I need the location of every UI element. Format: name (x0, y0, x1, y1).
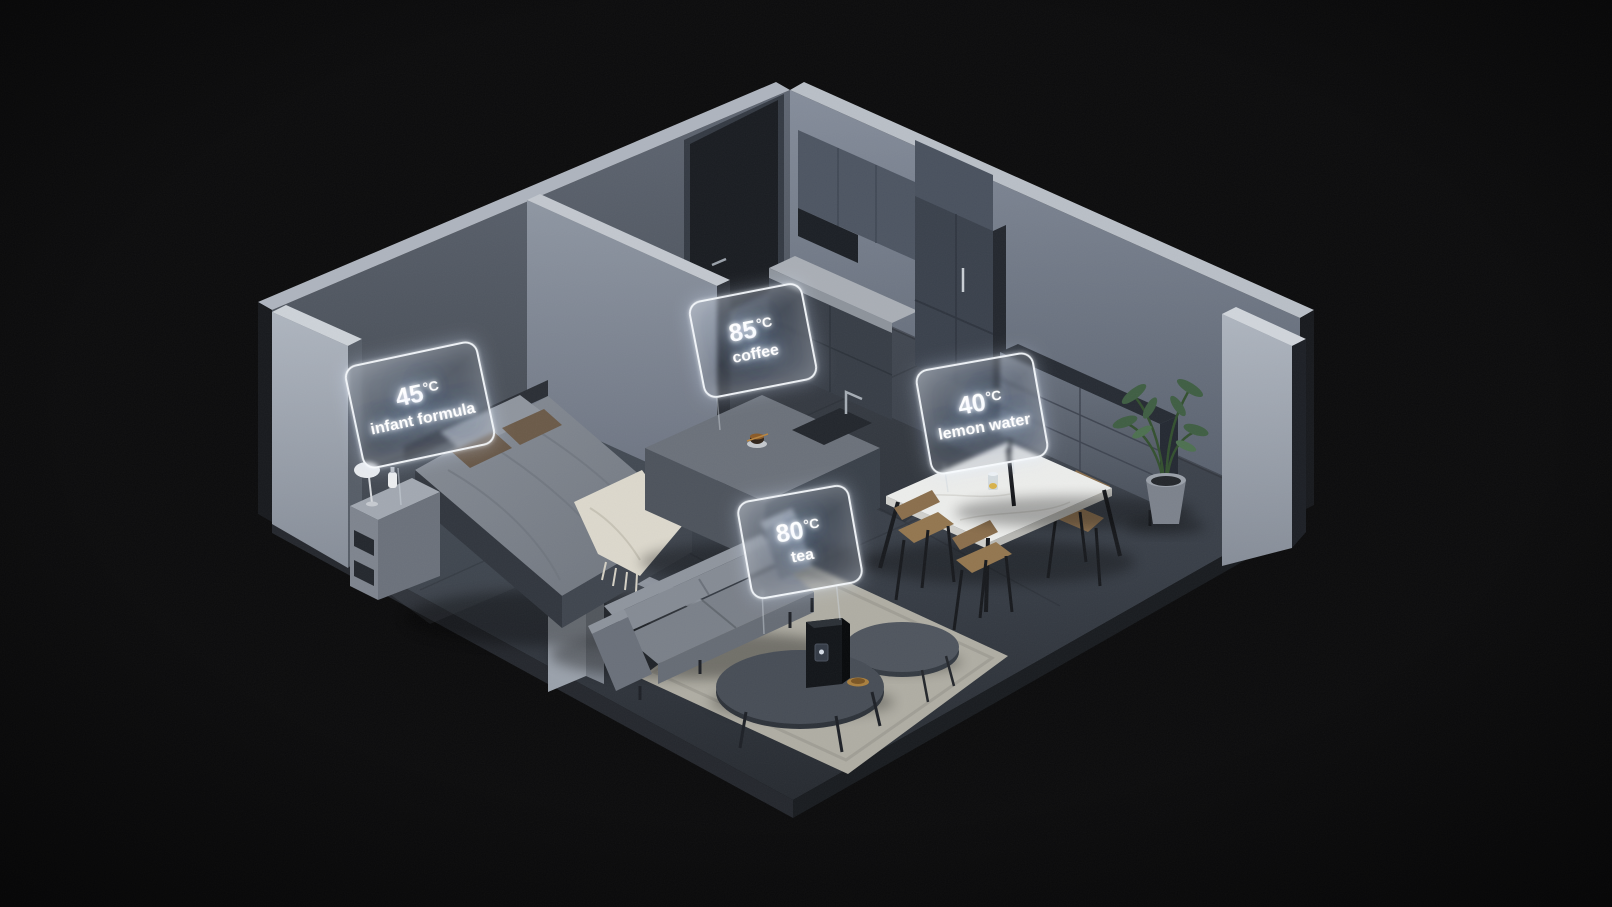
temperature-unit: °C (802, 515, 820, 533)
isometric-room-scene (0, 0, 1612, 907)
temp-label-lemon-water: 40°C lemon water (914, 350, 1051, 476)
temperature-value: 80 (774, 517, 806, 549)
temp-label-tea: 80°C tea (735, 483, 865, 601)
vignette (0, 0, 1612, 907)
temperature-value: 85 (726, 315, 759, 348)
temperature-unit: °C (421, 377, 440, 396)
beverage-name: tea (790, 546, 816, 568)
room-render-stage: 45°C infant formula 85°C coffee 40°C lem… (0, 0, 1612, 907)
temperature: 80°C (774, 515, 822, 549)
temperature-unit: °C (984, 386, 1002, 404)
temperature-unit: °C (755, 313, 773, 332)
temperature-value: 40 (956, 388, 988, 420)
temperature-value: 45 (393, 380, 426, 413)
temperature: 40°C (956, 386, 1004, 420)
